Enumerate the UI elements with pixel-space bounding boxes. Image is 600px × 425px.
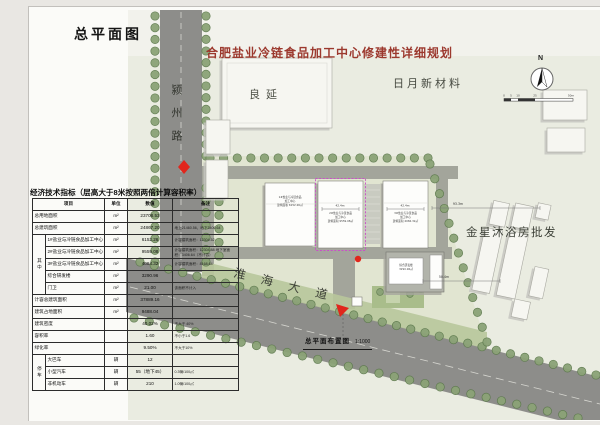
table-cell: 计容建筑面积：12304.88 地下室面积：3406.64（不计容） — [173, 247, 239, 259]
table-cell: 辆 — [105, 367, 128, 379]
table-cell: m² — [105, 211, 128, 223]
caption-text: 总平面布置图 — [305, 338, 350, 345]
table-cell: 1#盐业与冷链食品加工中心 — [46, 235, 105, 247]
table-cell: 建筑密度 — [33, 319, 105, 331]
table-cell: 地上21460.56，地下3406.64 — [173, 223, 239, 235]
table-cell: m² — [105, 235, 128, 247]
table-cell — [105, 331, 128, 343]
table-cell — [173, 295, 239, 307]
table-cell: 1.0辆/100㎡ — [173, 379, 239, 391]
table-row: 其中1#盐业与冷链食品加工中心m²6152.26计容建筑面积：12304.52 — [33, 235, 239, 247]
table-cell: 计容总建筑面积 — [33, 295, 105, 307]
table-cell: m² — [105, 223, 128, 235]
svg-text:建筑面积 6152.26㎡: 建筑面积 6152.26㎡ — [277, 203, 303, 207]
table-cell — [173, 307, 239, 319]
table-cell: 0.3辆/100㎡ — [173, 367, 239, 379]
table-row: 绿化率9.50%不大于10% — [33, 343, 239, 355]
table-row: 小型汽车辆55（地下45）0.3辆/100㎡ — [33, 367, 239, 379]
table-cell: 55（地下45） — [128, 367, 173, 379]
table-cell — [173, 211, 239, 223]
svg-text:25: 25 — [533, 94, 537, 98]
table-cell — [173, 271, 239, 283]
table-cell: 3290.96 — [128, 271, 173, 283]
label-neighbor-topright: 日月新材料 — [393, 75, 463, 91]
label-neighbor-top: 良延 — [249, 86, 283, 102]
svg-text:50.4m: 50.4m — [439, 275, 449, 279]
caption-scale: 1:1000 — [355, 339, 370, 345]
table-cell: 计容建筑面积：8168.64 — [173, 259, 239, 271]
table-cell: 21.00 — [128, 283, 173, 295]
table-cell — [105, 343, 128, 355]
table-cell: 总建筑面积 — [33, 223, 105, 235]
table-cell: 单位 — [105, 199, 128, 211]
svg-text:建筑面积 9559.08㎡: 建筑面积 9559.08㎡ — [328, 219, 354, 223]
table-row: 建筑占地面积m²9488.04 — [33, 307, 239, 319]
svg-text:42.4m: 42.4m — [336, 204, 345, 208]
table-cell: 综合研发楼 — [46, 271, 105, 283]
table-title: 经济技术指标（层高大于8米按照两倍计算容积率） — [30, 187, 201, 198]
table-cell: 建筑占地面积 — [33, 307, 105, 319]
table-cell: 不大于10% — [173, 343, 239, 355]
table-cell — [105, 319, 128, 331]
svg-text:5: 5 — [510, 94, 512, 98]
table-cell: 非机动车 — [46, 379, 105, 391]
table-row: 2#盐业与冷链食品加工中心m²9559.08计容建筑面积：12304.88 地下… — [33, 247, 239, 259]
indicator-table-wrap: 项目单位数值备注总用地面积m²23708.53总建筑面积m²24867.20地上… — [32, 198, 238, 391]
table-row: 总建筑面积m²24867.20地上21460.56，地下3406.64 — [33, 223, 239, 235]
table-row: 容积率1.60不小于1.6 — [33, 331, 239, 343]
page-title: 合肥盐业冷链食品加工中心修建性详细规划 — [206, 44, 453, 61]
table-cell: 停车 — [33, 355, 46, 391]
table-cell: 210 — [128, 379, 173, 391]
table-cell: 绿化率 — [33, 343, 105, 355]
table-cell: 3#盐业与冷链食品加工中心 — [46, 259, 105, 271]
doc-title: 总平面图 — [74, 24, 142, 44]
table-cell: 不小于1.6 — [173, 331, 239, 343]
table-cell: m² — [105, 307, 128, 319]
table-cell — [173, 355, 239, 367]
table-header-row: 项目单位数值备注 — [33, 199, 239, 211]
table-cell: 40.02% — [128, 319, 173, 331]
svg-text:0: 0 — [503, 94, 505, 98]
table-cell: 项目 — [33, 199, 105, 211]
label-neighbor-right: 金星沐浴房批发 — [466, 224, 557, 240]
label-road-west: 颍州路 — [168, 84, 184, 153]
table-row: 计容总建筑面积m²37889.16 — [33, 295, 239, 307]
table-cell: 该面积不计入 — [173, 283, 239, 295]
table-cell: 备注 — [173, 199, 239, 211]
table-cell: 容积率 — [33, 331, 105, 343]
table-cell: 数值 — [128, 199, 173, 211]
table-cell: 4084.32 — [128, 259, 173, 271]
table-cell: m² — [105, 271, 128, 283]
table-cell: 大巴车 — [46, 355, 105, 367]
table-cell: 2#盐业与冷链食品加工中心 — [46, 247, 105, 259]
table-cell: 辆 — [105, 355, 128, 367]
table-cell: 9488.04 — [128, 307, 173, 319]
table-cell: 6152.26 — [128, 235, 173, 247]
svg-text:93.3m: 93.3m — [453, 202, 463, 206]
table-cell: 其中 — [33, 235, 46, 295]
table-row: 建筑密度40.02%不大于 40% — [33, 319, 239, 331]
svg-text:3290.96㎡: 3290.96㎡ — [399, 267, 413, 271]
table-cell: m² — [105, 259, 128, 271]
north-label: N — [538, 55, 543, 62]
table-cell: 计容建筑面积：12304.52 — [173, 235, 239, 247]
table-cell: 1.60 — [128, 331, 173, 343]
table-cell: 不大于 40% — [173, 319, 239, 331]
table-cell: 辆 — [105, 379, 128, 391]
north-arrow — [531, 68, 553, 90]
table-row: 总用地面积m²23708.53 — [33, 211, 239, 223]
table-row: 3#盐业与冷链食品加工中心m²4084.32计容建筑面积：8168.64 — [33, 259, 239, 271]
plan-caption: 总平面布置图1:1000 — [303, 330, 372, 350]
table-row: 门卫m²21.00该面积不计入 — [33, 283, 239, 295]
table-cell: 9559.08 — [128, 247, 173, 259]
svg-text:10: 10 — [516, 94, 520, 98]
table-cell: 24867.20 — [128, 223, 173, 235]
table-cell: 23708.53 — [128, 211, 173, 223]
indicator-table: 项目单位数值备注总用地面积m²23708.53总建筑面积m²24867.20地上… — [32, 198, 239, 391]
table-cell: 门卫 — [46, 283, 105, 295]
table-cell: 9.50% — [128, 343, 173, 355]
table-cell: m² — [105, 283, 128, 295]
document-stage: 1#盐业与冷链食品加工中心建筑面积 6152.26㎡2#盐业与冷链食品加工中心建… — [0, 0, 600, 425]
svg-text:42.4m: 42.4m — [401, 204, 410, 208]
table-cell: 总用地面积 — [33, 211, 105, 223]
svg-text:50m: 50m — [568, 94, 575, 98]
table-row: 停车大巴车辆12 — [33, 355, 239, 367]
table-cell: 小型汽车 — [46, 367, 105, 379]
table-cell: m² — [105, 295, 128, 307]
table-row: 非机动车辆2101.0辆/100㎡ — [33, 379, 239, 391]
table-cell: 37889.16 — [128, 295, 173, 307]
table-cell: 12 — [128, 355, 173, 367]
table-row: 综合研发楼m²3290.96 — [33, 271, 239, 283]
svg-text:建筑面积 4084.32㎡: 建筑面积 4084.32㎡ — [393, 219, 419, 223]
table-cell: m² — [105, 247, 128, 259]
